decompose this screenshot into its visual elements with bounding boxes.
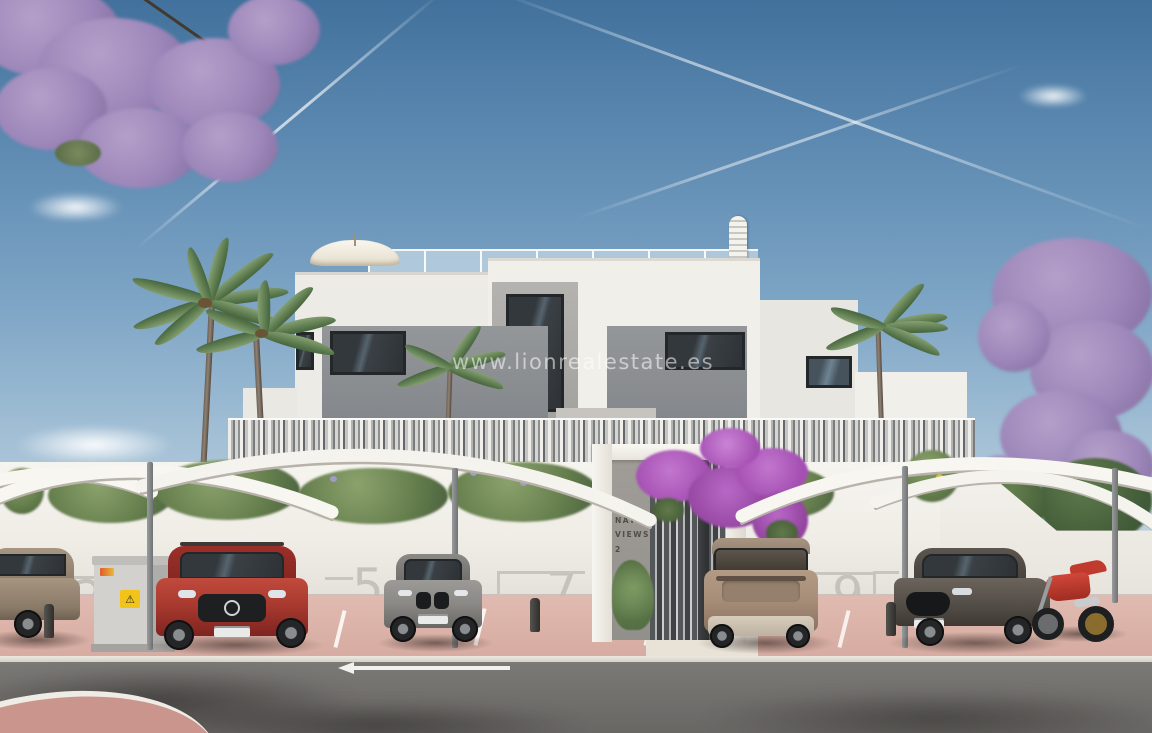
windshield <box>180 552 284 579</box>
car-wheel <box>1004 616 1032 644</box>
bollard <box>886 602 896 636</box>
architectural-render: 2 5 7 9 NATURE VIEWS 2 <box>0 0 1152 733</box>
car-window <box>0 554 66 576</box>
car-wheel <box>916 618 944 646</box>
watermark: www.lionrealestate.es <box>452 350 714 374</box>
kidney-grille <box>416 592 431 609</box>
car-wheel <box>710 624 734 648</box>
brand-emblem <box>224 600 240 616</box>
car-wheel <box>276 618 306 648</box>
bollard <box>530 598 540 632</box>
headlight <box>268 590 286 598</box>
car-wheel <box>14 610 42 638</box>
car-wheel <box>164 620 194 650</box>
taillight-bar <box>716 576 806 581</box>
grille <box>906 592 950 616</box>
car-body <box>0 578 80 620</box>
car-wheel <box>390 616 416 642</box>
car-windows <box>922 554 1018 578</box>
car-wheel <box>452 616 478 642</box>
windshield <box>404 559 462 582</box>
tailgate-recess <box>722 580 800 602</box>
info-label <box>100 568 114 576</box>
warning-sticker: ⚠ <box>120 590 140 608</box>
bronze-suv <box>700 536 822 652</box>
headlight <box>952 588 972 595</box>
red-motorcycle <box>1030 556 1114 646</box>
headlight <box>454 590 468 596</box>
kidney-grille <box>434 592 449 609</box>
car-wheel <box>786 624 810 648</box>
red-suv <box>152 542 314 654</box>
headlight <box>178 590 196 598</box>
gray-hatchback <box>382 552 486 650</box>
license-plate <box>214 626 250 637</box>
headlight <box>398 590 412 596</box>
bollard <box>44 604 54 638</box>
moto-wheel <box>1032 608 1064 640</box>
moto-wheel <box>1078 606 1114 642</box>
taupe-sedan <box>0 544 83 644</box>
license-plate <box>418 614 448 624</box>
